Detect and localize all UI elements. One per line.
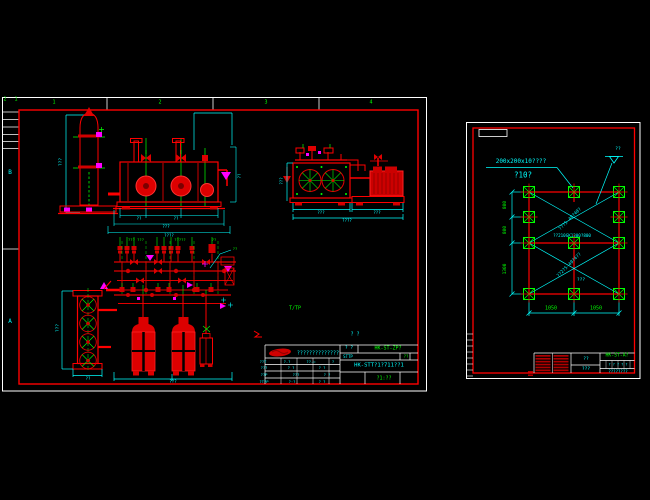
title-block-left bbox=[265, 345, 418, 384]
right-sheet-border bbox=[467, 123, 641, 379]
cad-drawing bbox=[0, 0, 650, 500]
skid-elevation bbox=[108, 138, 236, 234]
condenser-unit-elevation bbox=[283, 144, 404, 220]
tank-assembly bbox=[114, 283, 233, 381]
condenser-bank bbox=[62, 281, 117, 377]
foundation-plan bbox=[486, 157, 628, 317]
cad-viewport: 211234BA????????????????????????????????… bbox=[0, 0, 650, 500]
